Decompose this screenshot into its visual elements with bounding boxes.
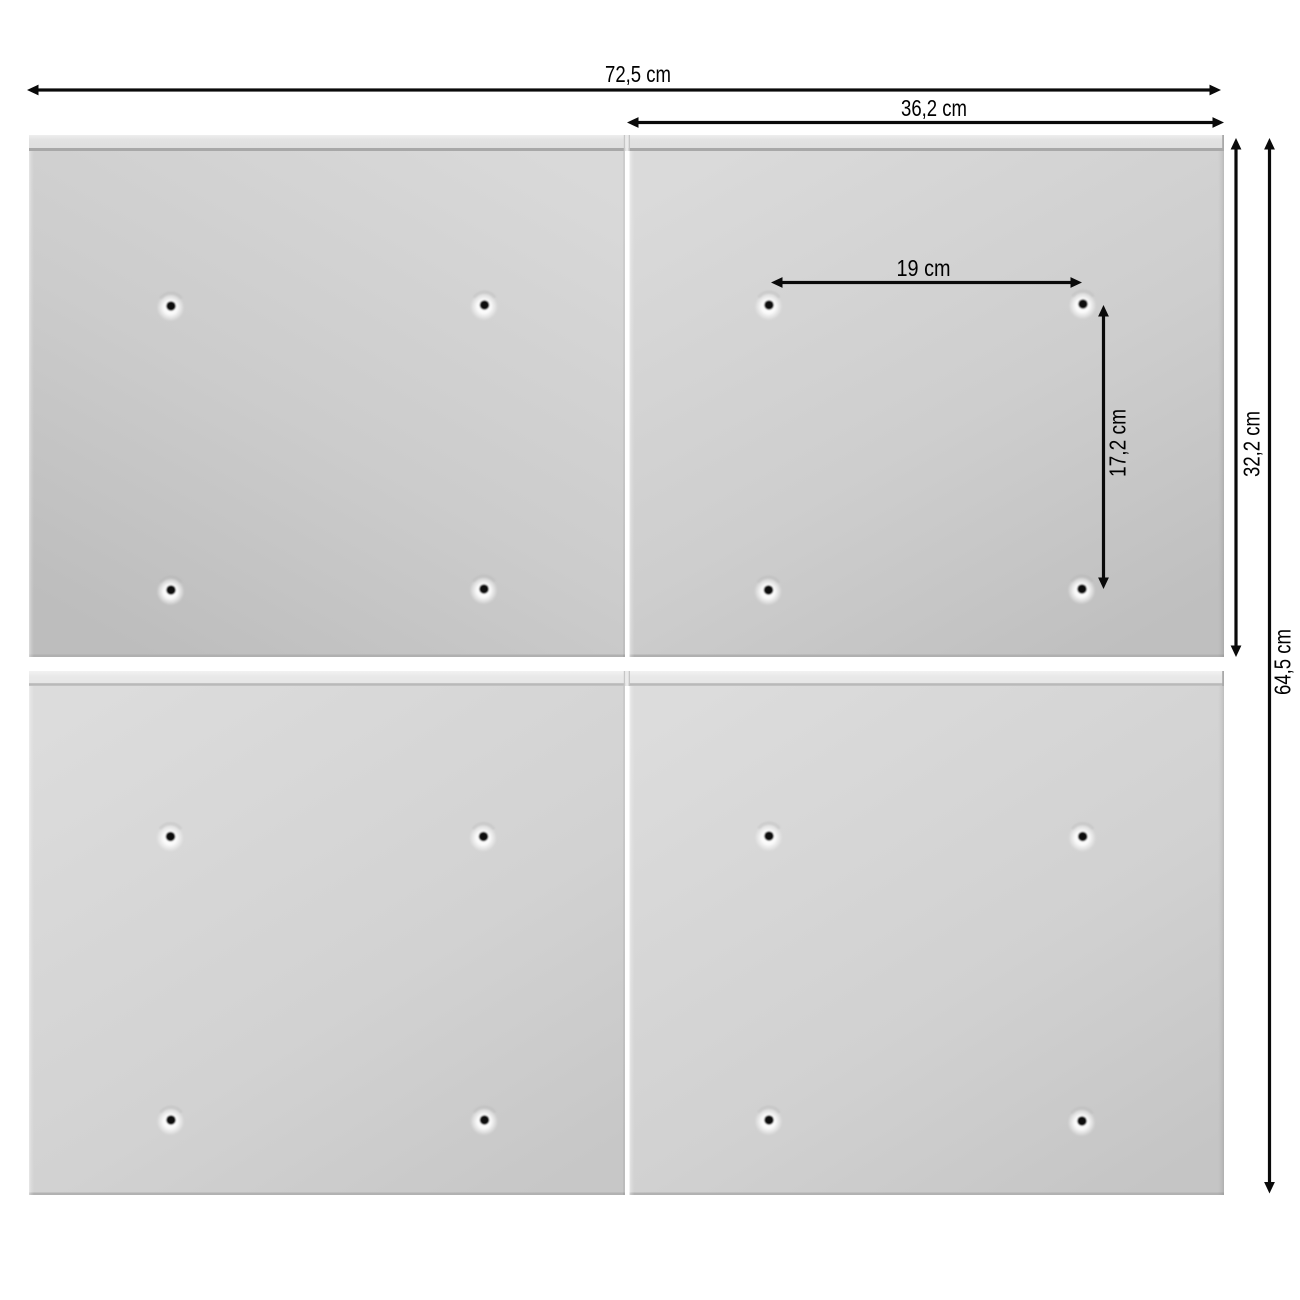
svg-text:17,2 cm: 17,2 cm bbox=[1105, 409, 1131, 477]
svg-text:64,5 cm: 64,5 cm bbox=[1270, 629, 1296, 695]
svg-text:72,5 cm: 72,5 cm bbox=[605, 61, 671, 87]
svg-text:19 cm: 19 cm bbox=[897, 255, 951, 281]
svg-text:32,2 cm: 32,2 cm bbox=[1239, 411, 1265, 477]
svg-text:36,2 cm: 36,2 cm bbox=[901, 95, 967, 121]
